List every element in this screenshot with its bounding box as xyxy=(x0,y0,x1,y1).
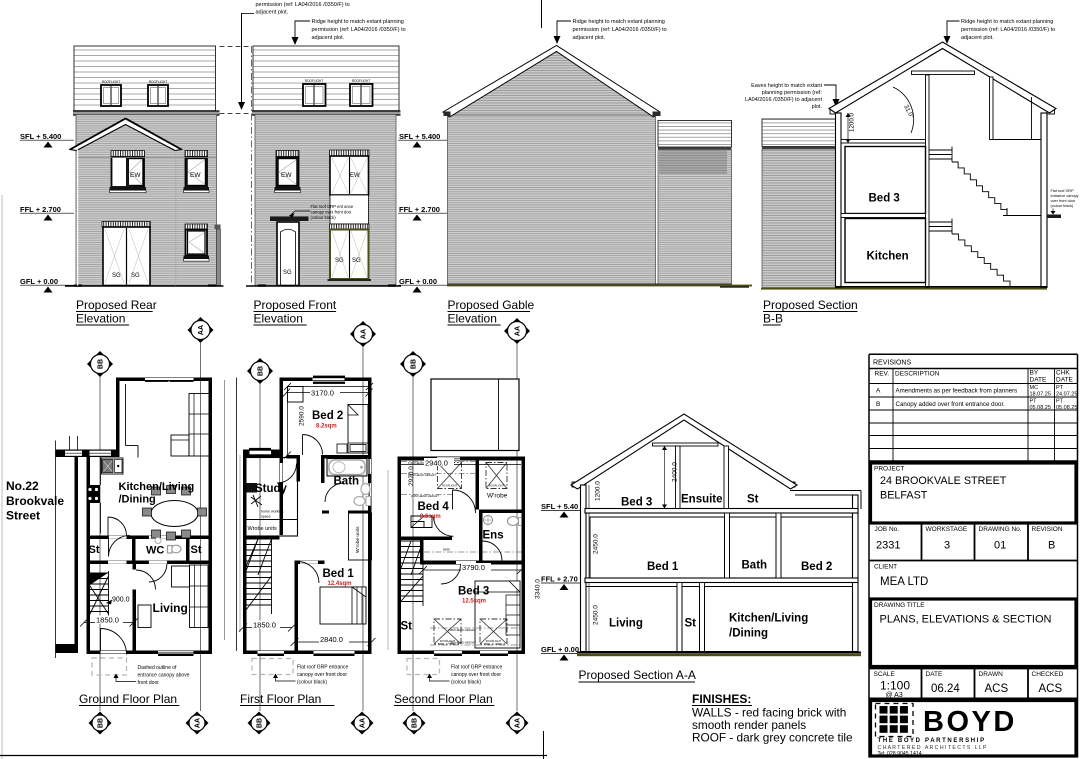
svg-text:2.4M HEAD HEIGHT: 2.4M HEAD HEIGHT xyxy=(411,494,439,498)
svg-text:CHK: CHK xyxy=(1056,370,1070,377)
svg-text:DRAWN: DRAWN xyxy=(979,671,1004,678)
svg-text:ACS: ACS xyxy=(985,683,1009,695)
svg-text:PT: PT xyxy=(1030,399,1038,405)
svg-text:Kitchen: Kitchen xyxy=(867,251,909,263)
svg-text:ROOFLIGHT: ROOFLIGHT xyxy=(352,79,371,83)
svg-text:adjacent plot.: adjacent plot. xyxy=(573,35,606,41)
svg-text:PT: PT xyxy=(1056,399,1064,405)
svg-text:(colour black): (colour black) xyxy=(451,680,481,686)
svg-text:Proposed Section: Proposed Section xyxy=(763,298,858,312)
svg-text:(colour black): (colour black) xyxy=(311,215,337,220)
svg-text:18.07.25: 18.07.25 xyxy=(1030,392,1051,398)
svg-text:Flat roof GRP entrance: Flat roof GRP entrance xyxy=(451,665,503,671)
svg-text:ROOFLIGHT: ROOFLIGHT xyxy=(305,79,324,83)
svg-text:FFL + 2.70: FFL + 2.70 xyxy=(541,575,578,584)
svg-text:/Dining: /Dining xyxy=(729,628,768,640)
svg-text:DRAWING TITLE: DRAWING TITLE xyxy=(874,602,925,609)
svg-text:canopy over front door: canopy over front door xyxy=(451,672,501,678)
svg-text:Bed 2: Bed 2 xyxy=(801,561,832,573)
svg-text:St: St xyxy=(191,544,202,556)
svg-text:1200.0: 1200.0 xyxy=(595,481,602,501)
svg-text:12.4sqm: 12.4sqm xyxy=(328,581,352,587)
svg-text:Bed 3: Bed 3 xyxy=(458,586,489,598)
svg-text:PT: PT xyxy=(1056,385,1064,391)
svg-text:05.08.25: 05.08.25 xyxy=(1056,405,1077,411)
svg-text:Wrobe units: Wrobe units xyxy=(248,526,277,532)
svg-text:space: space xyxy=(261,515,271,519)
svg-text:(colour black): (colour black) xyxy=(297,680,327,686)
svg-text:Bed 3: Bed 3 xyxy=(869,193,900,205)
svg-text:WORKSTAGE: WORKSTAGE xyxy=(926,526,968,533)
svg-text:permission (ref: LA04/2016 /03: permission (ref: LA04/2016 /0350/F) to xyxy=(961,27,1055,33)
svg-text:A: A xyxy=(876,388,881,395)
svg-text:CLIENT: CLIENT xyxy=(874,564,897,571)
svg-text:ROOFLIGHT: ROOFLIGHT xyxy=(102,80,121,84)
svg-text:SG: SG xyxy=(131,273,140,279)
svg-text:FINISHES:: FINISHES: xyxy=(692,692,751,706)
svg-text:WC: WC xyxy=(146,545,164,557)
svg-text:Bed 2: Bed 2 xyxy=(312,410,343,422)
svg-text:Ensuite: Ensuite xyxy=(681,494,723,506)
svg-text:Kitchen/Living: Kitchen/Living xyxy=(119,481,195,493)
svg-text:Living: Living xyxy=(609,618,643,630)
svg-text:Living: Living xyxy=(153,601,188,615)
svg-text:permission (ref: LA04/2016 /03: permission (ref: LA04/2016 /0350/F) to xyxy=(312,27,406,33)
svg-text:1.8M HEAD HEIGHT: 1.8M HEAD HEIGHT xyxy=(448,628,476,632)
svg-text:B-B: B-B xyxy=(763,312,783,326)
svg-text:06.24: 06.24 xyxy=(931,683,960,695)
svg-text:BB: BB xyxy=(411,718,418,728)
svg-text:entrance canopy above: entrance canopy above xyxy=(138,673,190,679)
svg-text:05.08.25: 05.08.25 xyxy=(1030,405,1051,411)
svg-text:Brookvale: Brookvale xyxy=(6,494,64,508)
svg-text:T H E B O Y D P A R T N E: T H E B O Y D P A R T N E R S H I P xyxy=(878,738,985,744)
svg-text:BOYD: BOYD xyxy=(923,706,1017,738)
svg-text:EW: EW xyxy=(281,172,292,179)
svg-text:DRAWING No.: DRAWING No. xyxy=(979,526,1022,533)
svg-text:SFL + 5.400: SFL + 5.400 xyxy=(399,132,440,141)
svg-text:MEA LTD: MEA LTD xyxy=(880,576,928,588)
svg-text:Ground Floor Plan: Ground Floor Plan xyxy=(79,692,177,706)
svg-text:2920.0: 2920.0 xyxy=(408,466,415,486)
svg-text:2450.0: 2450.0 xyxy=(593,534,600,554)
svg-text:PLANS, ELEVATIONS & SECTION: PLANS, ELEVATIONS & SECTION xyxy=(880,614,1052,626)
svg-text:Bed 1: Bed 1 xyxy=(647,561,679,573)
svg-text:St: St xyxy=(401,621,413,633)
svg-text:Proposed Rear: Proposed Rear xyxy=(76,298,157,312)
svg-text:BB: BB xyxy=(97,718,104,728)
svg-text:front door: front door xyxy=(138,680,160,686)
svg-text:Second Floor Plan: Second Floor Plan xyxy=(394,692,493,706)
svg-text:Ridge height to match extant p: Ridge height to match extant planning xyxy=(573,19,665,25)
svg-text:01: 01 xyxy=(994,540,1006,552)
svg-text:Bed 1: Bed 1 xyxy=(323,568,355,580)
svg-text:DATE: DATE xyxy=(1056,377,1074,384)
svg-text:AA: AA xyxy=(198,325,205,335)
svg-text:3790.0: 3790.0 xyxy=(462,563,485,572)
svg-text:Dashed outline of: Dashed outline of xyxy=(138,665,178,671)
svg-text:Flat roof GRP entrance: Flat roof GRP entrance xyxy=(297,665,349,671)
svg-text:FFL + 2.700: FFL + 2.700 xyxy=(399,205,440,214)
svg-text:AA: AA xyxy=(514,718,521,728)
svg-text:GFL + 0.00: GFL + 0.00 xyxy=(399,277,437,286)
svg-text:DATE: DATE xyxy=(1030,377,1048,384)
svg-text:/Dining: /Dining xyxy=(119,494,156,506)
svg-text:plot.: plot. xyxy=(812,104,823,110)
svg-text:adjacent plot.: adjacent plot. xyxy=(961,35,994,41)
svg-text:@ A3: @ A3 xyxy=(886,692,903,699)
svg-text:SFL + 5.400: SFL + 5.400 xyxy=(20,132,61,141)
svg-text:Amendments as per feedback fro: Amendments as per feedback from planners xyxy=(896,388,1018,395)
svg-text:1850.0: 1850.0 xyxy=(96,616,119,625)
svg-text:Bath: Bath xyxy=(742,560,768,572)
svg-text:REVISION: REVISION xyxy=(1032,526,1063,533)
svg-text:St: St xyxy=(89,544,100,556)
svg-text:24 BROOKVALE STREET: 24 BROOKVALE STREET xyxy=(880,475,1007,487)
svg-text:SG: SG xyxy=(335,258,344,264)
svg-text:Eaves height to match extant: Eaves height to match extant xyxy=(751,83,822,89)
svg-text:BY: BY xyxy=(1030,370,1039,377)
svg-text:SG: SG xyxy=(283,270,292,276)
svg-text:canopy over front door: canopy over front door xyxy=(297,672,347,678)
svg-text:8.2sqm: 8.2sqm xyxy=(316,424,337,430)
svg-text:ACS: ACS xyxy=(1039,683,1063,695)
svg-text:GFL + 0.00: GFL + 0.00 xyxy=(541,645,579,654)
svg-text:MC: MC xyxy=(1030,385,1039,391)
svg-text:PROJECT: PROJECT xyxy=(874,466,904,473)
svg-text:900.0: 900.0 xyxy=(112,597,130,604)
svg-text:Canopy added over front entran: Canopy added over front entrance door. xyxy=(896,401,1006,408)
svg-text:JOB No.: JOB No. xyxy=(875,526,900,533)
svg-text:Street: Street xyxy=(6,509,40,523)
svg-text:home working: home working xyxy=(261,510,283,514)
svg-text:9999: 9999 xyxy=(443,548,450,552)
svg-text:ROOFLIGHT: ROOFLIGHT xyxy=(486,639,502,643)
svg-text:2590.0: 2590.0 xyxy=(299,406,306,426)
svg-text:SG: SG xyxy=(112,273,121,279)
svg-text:(colour black): (colour black) xyxy=(1051,204,1075,208)
svg-text:Flat roof GRP ent ance: Flat roof GRP ent ance xyxy=(311,204,354,209)
svg-text:Bed 3: Bed 3 xyxy=(621,497,652,509)
svg-text:W'robe units: W'robe units xyxy=(355,526,361,553)
svg-text:planning permission (ref:: planning permission (ref: xyxy=(762,90,823,96)
svg-text:BB: BB xyxy=(97,359,104,369)
svg-text:Proposed Gable: Proposed Gable xyxy=(448,298,535,312)
svg-text:Tel: 028 9045 1414: Tel: 028 9045 1414 xyxy=(878,751,922,757)
svg-text:St: St xyxy=(747,494,759,506)
svg-text:Bath: Bath xyxy=(334,476,360,488)
svg-text:Study: Study xyxy=(255,483,288,495)
svg-text:BELFAST: BELFAST xyxy=(880,490,928,502)
svg-text:24.07.25: 24.07.25 xyxy=(1056,392,1077,398)
svg-text:Ens: Ens xyxy=(483,530,504,542)
svg-text:GFL + 0.00: GFL + 0.00 xyxy=(20,277,58,286)
svg-text:ROOFLIGHT: ROOFLIGHT xyxy=(442,484,458,488)
svg-text:Ridge height to match extant p: Ridge height to match extant planning xyxy=(961,19,1053,25)
svg-text:adjacent plot.: adjacent plot. xyxy=(256,10,289,16)
svg-text:Elevation: Elevation xyxy=(254,312,303,326)
svg-text:B: B xyxy=(1048,540,1055,552)
svg-text:AA: AA xyxy=(194,718,201,728)
svg-text:Kitchen/Living: Kitchen/Living xyxy=(729,613,808,625)
svg-text:SG: SG xyxy=(352,258,361,264)
svg-text:over front door: over front door xyxy=(1051,199,1076,203)
svg-text:entrance canopy: entrance canopy xyxy=(1051,194,1079,198)
svg-text:SFL + 5.40: SFL + 5.40 xyxy=(541,502,578,511)
svg-text:2331: 2331 xyxy=(876,540,900,552)
svg-text:First Floor Plan: First Floor Plan xyxy=(240,692,321,706)
svg-text:ROOF - dark grey concrete tile: ROOF - dark grey concrete tile xyxy=(692,731,853,745)
svg-text:EW: EW xyxy=(130,172,141,179)
svg-text:CHECKED: CHECKED xyxy=(1032,671,1064,678)
svg-text:DESCRIPTION: DESCRIPTION xyxy=(895,371,940,378)
svg-text:AA: AA xyxy=(359,718,366,728)
svg-text:W'robe: W'robe xyxy=(487,493,508,500)
svg-text:No.22: No.22 xyxy=(6,479,39,493)
svg-text:Elevation: Elevation xyxy=(448,312,497,326)
svg-text:1200.0: 1200.0 xyxy=(849,113,856,132)
svg-text:AA: AA xyxy=(360,329,367,339)
svg-text:EW: EW xyxy=(190,172,201,179)
svg-text:1850.0: 1850.0 xyxy=(253,621,276,630)
svg-text:St: St xyxy=(685,618,697,630)
svg-text:1:100: 1:100 xyxy=(880,679,910,693)
svg-text:Bed 4: Bed 4 xyxy=(418,501,450,513)
svg-text:3170.0: 3170.0 xyxy=(311,389,334,398)
svg-text:3: 3 xyxy=(944,540,950,552)
svg-text:SCALE: SCALE xyxy=(874,671,896,678)
svg-text:canopy over front doo: canopy over front doo xyxy=(311,210,352,215)
svg-text:2940.0: 2940.0 xyxy=(425,459,448,468)
svg-text:EW: EW xyxy=(350,173,360,179)
svg-text:REVISIONS: REVISIONS xyxy=(873,360,911,367)
svg-text:AA: AA xyxy=(514,326,521,336)
svg-text:Ridge height to match extant p: Ridge height to match extant planning xyxy=(312,19,404,25)
svg-text:12.5sqm: 12.5sqm xyxy=(462,599,486,605)
svg-text:B: B xyxy=(876,401,880,408)
svg-text:permission (ref: LA04/2016 /03: permission (ref: LA04/2016 /0350/F) to xyxy=(573,27,667,33)
svg-text:DATE: DATE xyxy=(926,671,944,678)
svg-text:ROOFLIGHT: ROOFLIGHT xyxy=(149,80,168,84)
svg-text:Proposed Front: Proposed Front xyxy=(254,298,337,312)
svg-text:2400.0: 2400.0 xyxy=(672,462,679,482)
svg-text:REV.: REV. xyxy=(875,371,890,378)
svg-text:BB: BB xyxy=(410,359,417,369)
svg-text:FFL + 2.700: FFL + 2.700 xyxy=(20,205,61,214)
svg-text:1.8M HEAD HEIGHT: 1.8M HEAD HEIGHT xyxy=(448,641,476,645)
svg-text:Elevation: Elevation xyxy=(76,312,125,326)
svg-text:Flat roof GRP: Flat roof GRP xyxy=(1051,189,1075,193)
svg-text:ROOFLIGHT: ROOFLIGHT xyxy=(489,484,505,488)
svg-text:BB: BB xyxy=(256,718,263,728)
svg-text:Proposed Section A-A: Proposed Section A-A xyxy=(579,668,696,682)
svg-text:8.6sqm: 8.6sqm xyxy=(420,514,441,520)
svg-text:adjacent plot.: adjacent plot. xyxy=(312,35,345,41)
svg-text:BB: BB xyxy=(257,366,264,376)
svg-text:2840.0: 2840.0 xyxy=(320,635,343,644)
svg-text:LA04/2016 /0350/F) to adjacent: LA04/2016 /0350/F) to adjacent xyxy=(745,97,823,103)
svg-text:permission (ref: LA04/2016 /03: permission (ref: LA04/2016 /0350/F) to xyxy=(256,2,350,8)
svg-text:2450.0: 2450.0 xyxy=(593,605,600,625)
